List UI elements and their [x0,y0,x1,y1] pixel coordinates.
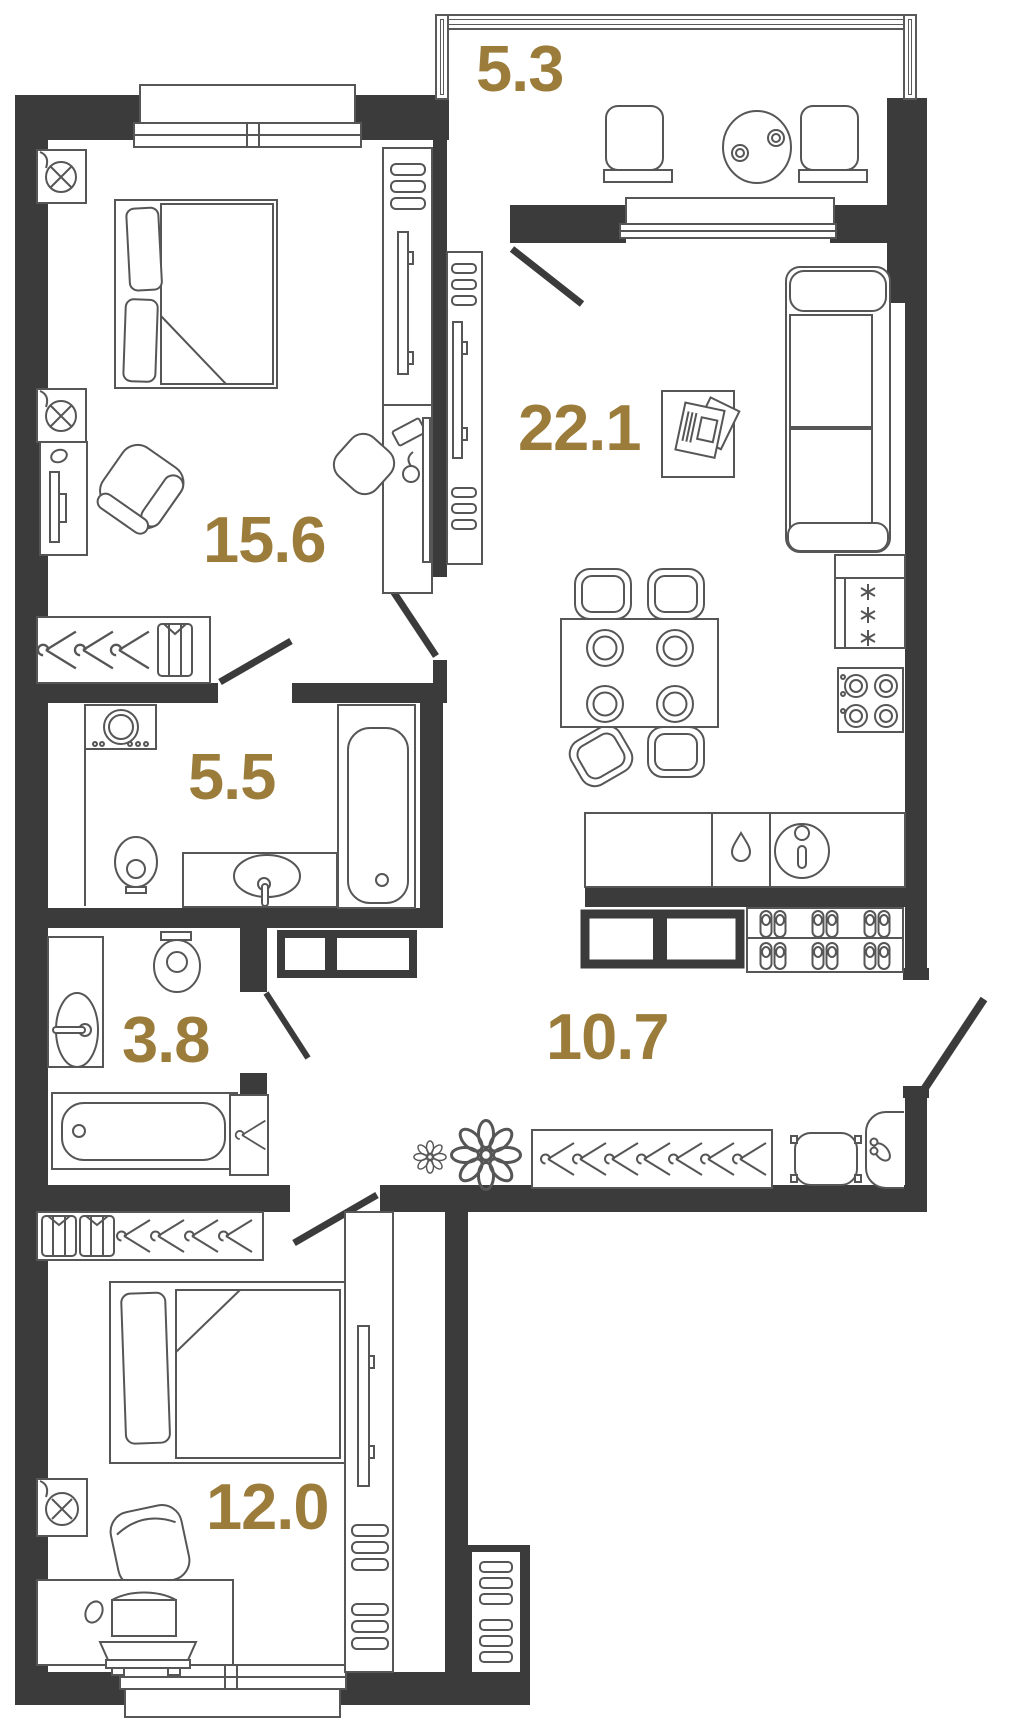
desk-icon [383,148,432,593]
vent-duct-icon [472,1552,520,1672]
flower-icon [414,1141,446,1173]
window-icon [120,1665,346,1717]
shoe-horn-icon [866,1112,904,1188]
bathtub-icon [52,1093,237,1169]
room-label-bedroom-second: 12.0 [206,1474,329,1539]
floor-plan: 5.3 22.1 15.6 5.5 3.8 10.7 12.0 [0,0,1016,1724]
shoe-bench-icon [281,932,413,976]
armchair-icon [90,438,191,540]
flower-icon [452,1121,521,1190]
burner-icon [845,705,867,727]
laptop-icon [112,1593,176,1637]
coat-rack-icon [532,1130,772,1188]
shoe-bench-icon [585,910,740,968]
coffee-table-icon [662,391,741,477]
window-icon [134,85,361,147]
balcony-stool-icon [604,106,672,182]
shirt-icon [42,1216,76,1256]
room-label-living-kitchen: 22.1 [518,395,641,460]
double-bed-icon [115,200,277,388]
plate-icon [657,686,693,722]
shirt-icon [80,1216,114,1256]
wardrobe-hangers-icon [37,1212,263,1260]
toilet-icon [154,932,200,992]
door-icon [512,249,582,304]
single-bed-icon [110,1282,345,1463]
shelves-icon [447,252,482,564]
furniture-layer [0,0,1016,1724]
chair-icon [648,569,704,619]
burner-icon [845,675,867,697]
plate-icon [657,630,693,666]
tv-icon [398,232,408,374]
door-icon [220,641,291,682]
burner-icon [875,705,897,727]
hanger-rack-icon [230,1095,268,1175]
tv-icon [453,322,462,458]
shelves-icon [345,1212,393,1672]
washbasin-icon [48,937,103,1067]
bathtub-icon [338,705,415,908]
ceiling-lamp-icon [37,150,86,203]
sink-icon [775,824,829,878]
chair-icon [648,727,704,777]
mouse-icon [403,466,419,482]
shirt-icon [158,624,192,676]
ceiling-lamp-icon [37,1479,87,1536]
washbasin-icon [183,853,337,907]
room-label-hallway: 10.7 [546,1004,669,1069]
burner-icon [875,675,897,697]
window-icon [620,198,836,238]
toilet-icon [115,837,157,893]
stove-icon [838,668,903,732]
room-label-bedroom-master: 15.6 [203,507,326,572]
slippers-shelf-icon [747,908,903,972]
armchair-icon [107,1501,193,1590]
entrance-door-icon [923,999,984,1091]
balcony-stool-icon [799,106,867,182]
room-label-bathroom-guest: 3.8 [122,1007,209,1072]
balcony-table-icon [723,111,791,183]
room-label-balcony: 5.3 [476,36,563,101]
chair-icon [575,569,631,619]
door-icon [266,993,308,1058]
sofa-icon [786,267,890,552]
dining-table-icon [561,569,718,792]
tv-icon [358,1326,369,1486]
room-label-bathroom: 5.5 [188,744,275,809]
chair-icon [564,720,637,791]
wardrobe-hangers-icon [37,617,210,683]
plate-icon [587,630,623,666]
plate-icon [587,686,623,722]
desk-icon [37,1580,233,1675]
ceiling-lamp-icon [37,389,86,442]
pouf-icon [791,1133,861,1185]
tv-stand-icon [40,442,87,555]
fridge-icon [835,578,905,648]
